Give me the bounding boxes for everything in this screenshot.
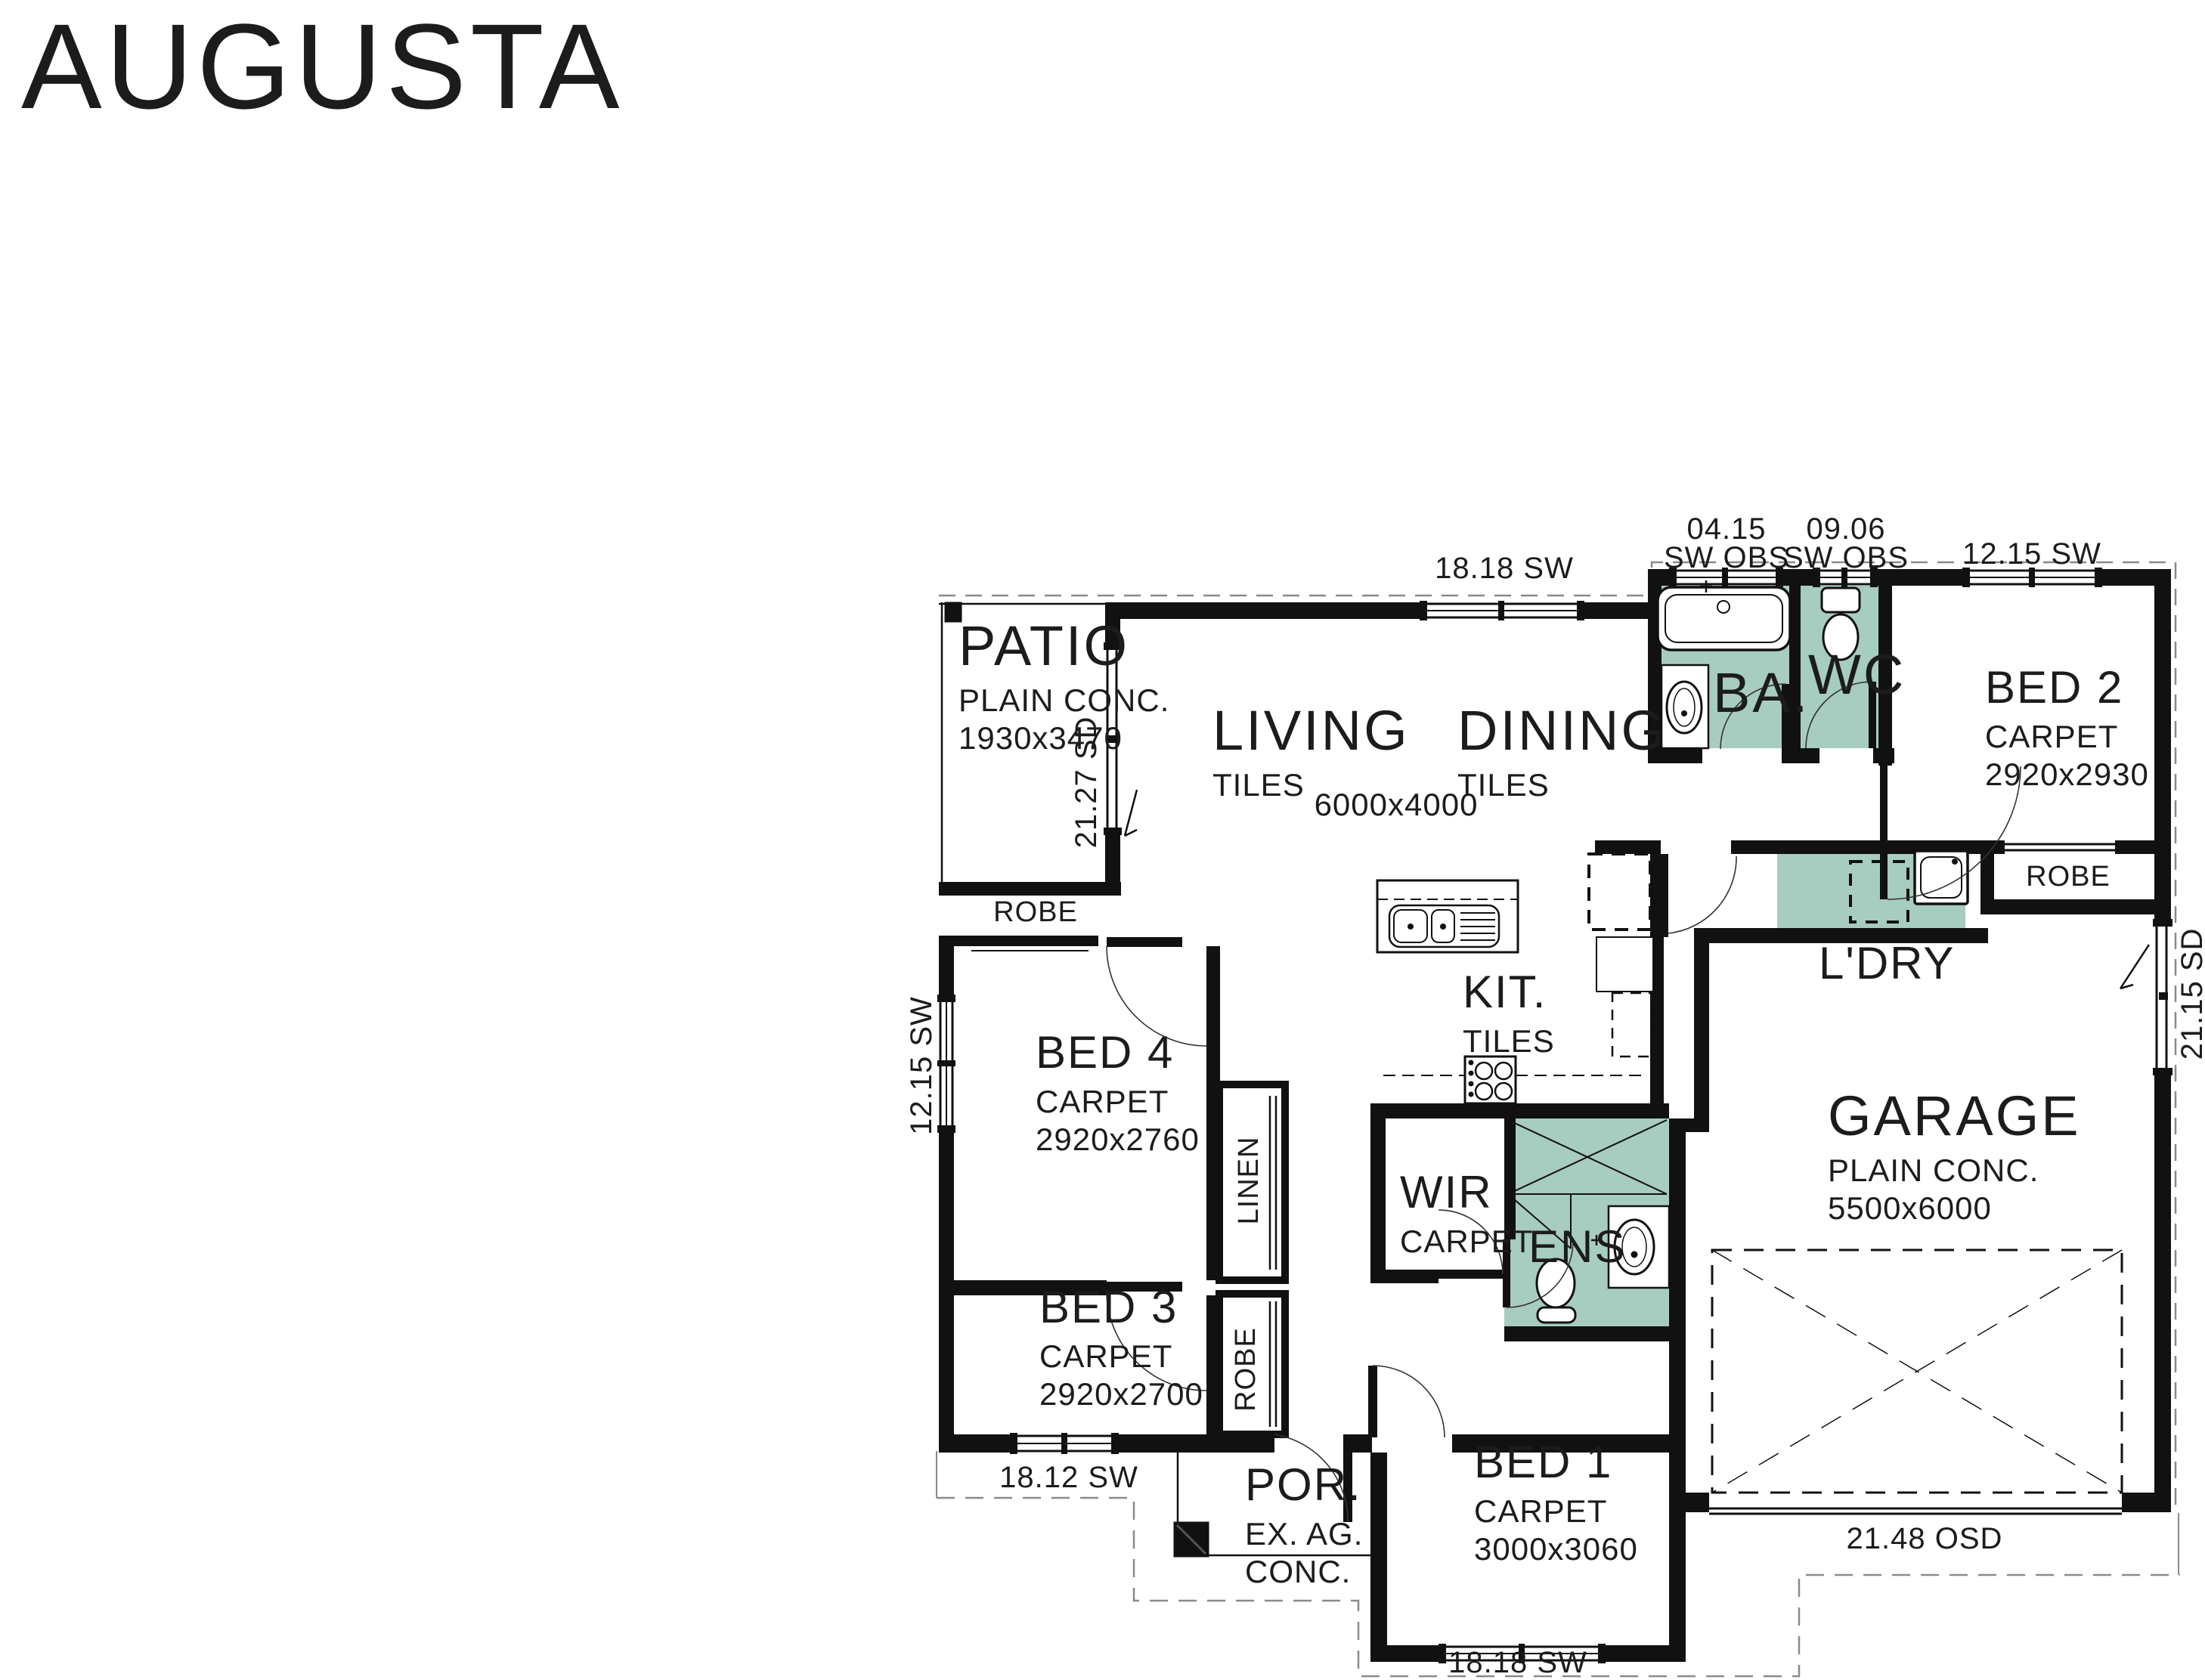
patio-name: PATIO <box>958 618 1169 674</box>
robe-bed4-label: ROBE <box>993 898 1078 927</box>
patio-finish: PLAIN CONC. <box>958 685 1169 716</box>
dim-top-bath-num: 04.15 <box>1686 514 1766 544</box>
dim-bottom-bed3: 18.12 SW <box>999 1462 1138 1493</box>
fridge-space <box>1589 854 1650 930</box>
linen-label: LINEN <box>1234 1137 1263 1225</box>
dim-top-living: 18.18 SW <box>1435 553 1574 583</box>
bed2-name: BED 2 <box>1985 665 2149 710</box>
bed3-finish: CARPET <box>1039 1341 1203 1372</box>
wir-finish: CARPET <box>1400 1226 1533 1258</box>
dining-name: DINING <box>1457 703 1667 759</box>
bed4-size: 2920x2760 <box>1036 1124 1200 1156</box>
door-leaf-garage <box>1661 854 1668 937</box>
room-label-wir: WIR CARPET <box>1400 1170 1533 1258</box>
door-leaf-wir <box>1439 1270 1503 1279</box>
dim-bottom-bed1: 18.18 SW <box>1448 1648 1587 1678</box>
room-label-garage: GARAGE PLAIN CONC. 5500x6000 <box>1828 1088 2081 1224</box>
bed2-finish: CARPET <box>1985 721 2149 753</box>
dim-bottom-garage: 21.48 OSD <box>1847 1524 2003 1554</box>
sliding-door-garage-right <box>2153 919 2172 1075</box>
porch-finish-2: CONC. <box>1245 1556 1363 1588</box>
room-label-laundry: L'DRY <box>1819 941 1955 986</box>
door-leaf-bed4 <box>1107 937 1182 947</box>
room-label-bed2: BED 2 CARPET 2920x2930 <box>1985 665 2149 790</box>
dining-finish: TILES <box>1457 769 1667 801</box>
living-dining-size: 6000x4000 <box>1315 789 1479 821</box>
garage-door-line <box>1709 1508 2122 1514</box>
bed3-size: 2920x2700 <box>1039 1378 1203 1410</box>
dim-top-bed2: 12.15 SW <box>1962 539 2101 569</box>
window-bottom-bed3 <box>1010 1433 1119 1454</box>
porch-pier <box>1174 1522 1209 1557</box>
porch-finish-1: EX. AG. <box>1245 1518 1363 1550</box>
garage-size: 5500x6000 <box>1828 1193 2081 1224</box>
kitchen-finish: TILES <box>1463 1026 1555 1057</box>
door-arc-garage <box>1668 856 1736 933</box>
cooktop <box>1465 1057 1516 1103</box>
bathtub <box>1658 580 1790 650</box>
garage-elements <box>1709 1250 2122 1514</box>
room-label-dining: DINING TILES <box>1457 703 1667 801</box>
slide-arrow-garage <box>2120 945 2149 989</box>
floorplan-page: AUGUSTA PATIO PLAIN CONC. 1930x3470 LIVI… <box>0 0 2205 1680</box>
living-name: LIVING <box>1212 703 1410 759</box>
plan-title: AUGUSTA <box>21 6 624 127</box>
door-arc-bed1 <box>1373 1366 1445 1437</box>
bed1-name: BED 1 <box>1474 1440 1638 1485</box>
bed3-name: BED 3 <box>1039 1285 1203 1330</box>
bath-basin <box>1661 665 1708 748</box>
window-top-living <box>1420 601 1584 620</box>
garage-finish: PLAIN CONC. <box>1828 1155 2081 1187</box>
room-label-porch: POR. EX. AG. CONC. <box>1245 1462 1363 1588</box>
dim-top-bath-type: SW OBS <box>1664 543 1789 573</box>
sliding-front-robe-bed2 <box>2005 844 2115 850</box>
door-leaf-bed1 <box>1368 1366 1377 1437</box>
room-label-bath: BA. <box>1713 665 1810 721</box>
room-label-bed3: BED 3 CARPET 2920x2700 <box>1039 1285 1203 1410</box>
pantry-overhead <box>1612 993 1653 1057</box>
wir-name: WIR <box>1400 1170 1533 1215</box>
room-label-kitchen: KIT. TILES <box>1463 970 1555 1057</box>
bed2-size: 2920x2930 <box>1985 759 2149 790</box>
bed4-finish: CARPET <box>1036 1086 1200 1118</box>
room-label-bed4: BED 4 CARPET 2920x2760 <box>1036 1030 1200 1156</box>
robe-bed3-label: ROBE <box>1231 1327 1260 1412</box>
garage-name: GARAGE <box>1828 1088 2081 1144</box>
bed1-size: 3000x3060 <box>1474 1533 1638 1565</box>
room-label-bed1: BED 1 CARPET 3000x3060 <box>1474 1440 1638 1565</box>
dim-top-wc-num: 09.06 <box>1806 514 1885 544</box>
car-space <box>1712 1250 2122 1493</box>
dim-left-bed4: 12.15 SW <box>906 996 937 1135</box>
dim-right-garage: 21.15 SD <box>2177 928 2205 1060</box>
bed1-finish: CARPET <box>1474 1496 1638 1527</box>
room-label-wc: WC <box>1808 647 1906 703</box>
kitchen-island-sink <box>1377 880 1518 952</box>
dim-top-wc-type: SW OBS <box>1783 543 1909 573</box>
slide-arrow-patio <box>1125 790 1137 836</box>
porch-name: POR. <box>1245 1462 1363 1508</box>
bed4-name: BED 4 <box>1036 1030 1200 1075</box>
pantry <box>1596 937 1653 992</box>
room-label-ens: ENS <box>1528 1224 1626 1270</box>
room-label-patio: PATIO PLAIN CONC. 1930x3470 <box>958 618 1169 754</box>
robe-bed2-label: ROBE <box>2026 862 2111 891</box>
dim-left-patio: 21.27 SD <box>1071 716 1101 849</box>
door-leaf-bed2 <box>1880 766 1888 899</box>
patio-size: 1930x3470 <box>958 722 1169 754</box>
window-left-bed4 <box>937 995 955 1133</box>
kitchen-name: KIT. <box>1463 970 1555 1015</box>
